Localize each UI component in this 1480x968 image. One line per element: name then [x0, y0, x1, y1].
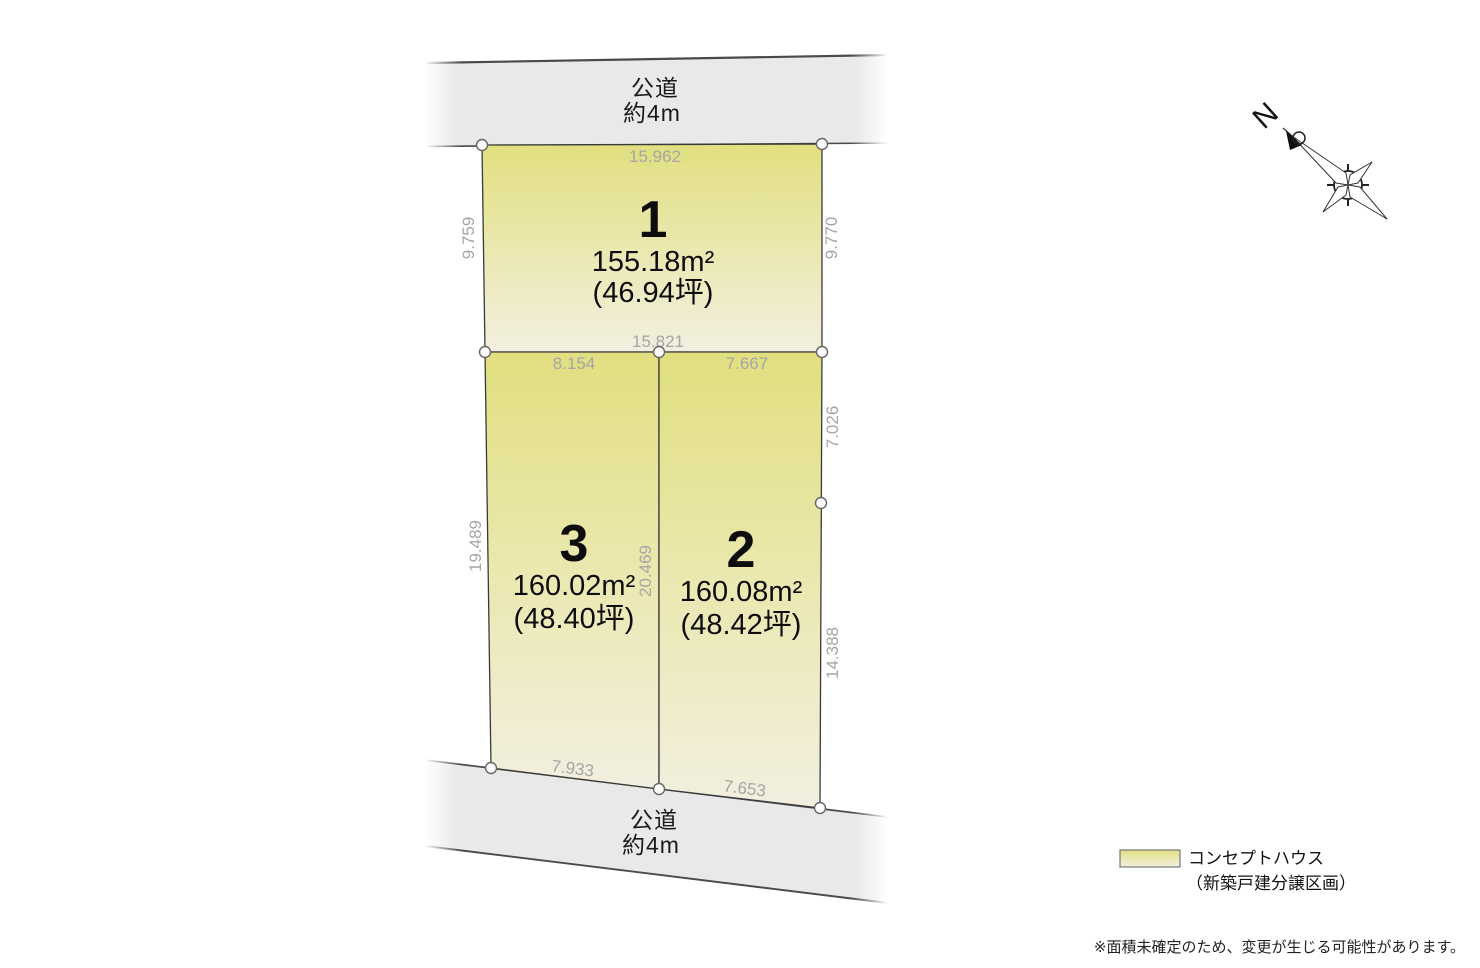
lot-1: 1 155.18m² (46.94坪) 15.962 9.759 9.770 1… — [459, 144, 841, 352]
lot-1-dim-right: 9.770 — [822, 217, 841, 260]
legend-line1: コンセプトハウス — [1188, 849, 1324, 868]
lot-plan-canvas: 公道 約4m 公道 約4m 1 155.18m² (46.94坪) 15.962… — [0, 0, 1480, 968]
lot-2-dim-right-lower: 14.388 — [823, 627, 842, 679]
compass-north-label: N — [1247, 96, 1285, 135]
lot-2-dim-right-upper: 7.026 — [823, 406, 842, 449]
lot-2-tsubo: (48.42坪) — [681, 608, 802, 641]
lot-3-tsubo: (48.40坪) — [514, 602, 635, 635]
vertex-marker — [486, 763, 497, 774]
vertex-marker — [480, 347, 491, 358]
vertex-marker — [816, 498, 827, 509]
lot-1-dim-left: 9.759 — [459, 217, 478, 260]
area-disclaimer-note: ※面積未確定のため、変更が生じる可能性があります。 — [1094, 939, 1465, 956]
vertex-marker — [654, 347, 665, 358]
road-top-name: 公道 — [631, 75, 679, 101]
legend: コンセプトハウス （新築戸建分譲区画） — [1120, 849, 1356, 893]
lot-3-dim-left: 19.489 — [466, 520, 485, 572]
lot-plan-drawing: 公道 約4m 公道 約4m 1 155.18m² (46.94坪) 15.962… — [0, 0, 1480, 968]
road-top-width: 約4m — [623, 100, 681, 126]
compass-star — [1292, 136, 1387, 219]
vertex-marker — [817, 139, 828, 150]
lot-2-dim-top: 7.667 — [726, 354, 769, 373]
road-top: 公道 約4m — [425, 55, 888, 146]
lot-2-area: 160.08m² — [680, 576, 803, 608]
vertex-marker — [654, 784, 665, 795]
lot-2-number: 2 — [727, 521, 756, 579]
lot-3-number: 3 — [560, 515, 589, 573]
lot-1-dim-top: 15.962 — [629, 147, 681, 166]
lot-3-area: 160.02m² — [513, 570, 636, 602]
lot-3: 3 160.02m² (48.40坪) 8.154 19.489 20.469 … — [466, 352, 659, 789]
lot-2: 2 160.08m² (48.42坪) 7.667 7.026 14.388 7… — [659, 352, 842, 808]
lot-3-dim-top: 8.154 — [553, 354, 596, 373]
legend-line2: （新築戸建分譲区画） — [1186, 874, 1356, 893]
vertex-marker — [817, 347, 828, 358]
legend-swatch — [1120, 850, 1180, 867]
lot-1-number: 1 — [639, 191, 668, 249]
lot-3-dim-divider: 20.469 — [636, 545, 655, 597]
compass-rose-icon: N — [1247, 96, 1387, 219]
road-bottom-width: 約4m — [622, 832, 680, 858]
lot-1-tsubo: (46.94坪) — [593, 276, 714, 309]
lot-1-area: 155.18m² — [592, 246, 715, 278]
vertex-marker — [477, 140, 488, 151]
road-bottom-name: 公道 — [630, 807, 678, 833]
vertex-marker — [815, 803, 826, 814]
